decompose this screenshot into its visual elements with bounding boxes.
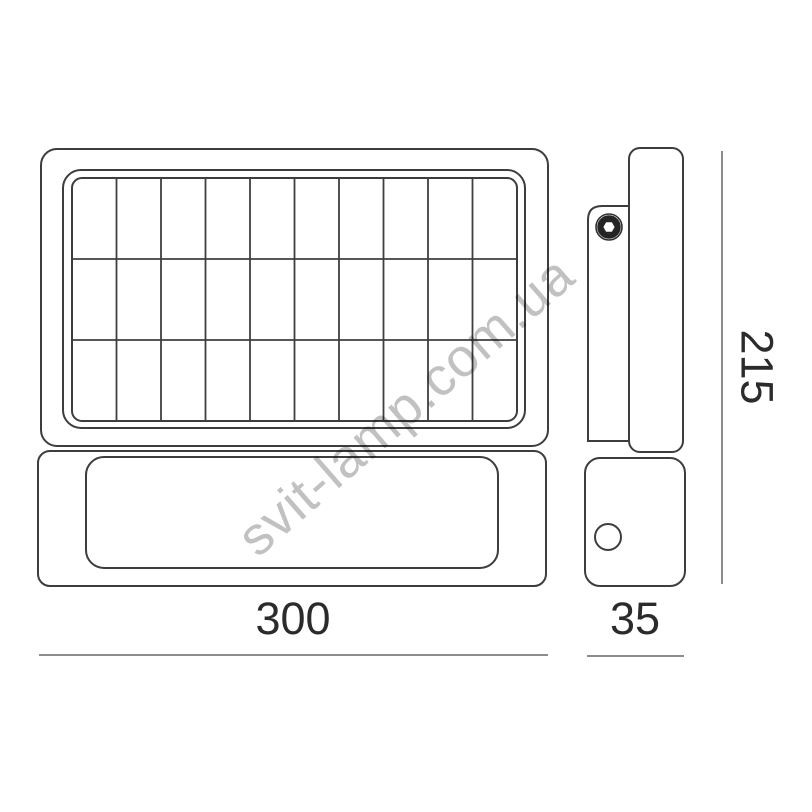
dimension-label-side-width: 35	[610, 593, 660, 644]
bolt-hexagon	[603, 221, 616, 232]
dimension-label-front-width: 300	[255, 593, 330, 644]
side-panel-body	[629, 148, 683, 452]
bolt-icon	[596, 214, 622, 240]
front-housing-bottom	[38, 451, 546, 586]
side-view	[585, 148, 685, 586]
dimension-label-height: 215	[731, 329, 782, 404]
front-view	[38, 149, 548, 586]
diagram-canvas: 300 35 215 svit-lamp.com.ua	[0, 0, 812, 812]
technical-drawing: 300 35 215	[0, 0, 812, 812]
side-lamp-body	[585, 458, 685, 586]
